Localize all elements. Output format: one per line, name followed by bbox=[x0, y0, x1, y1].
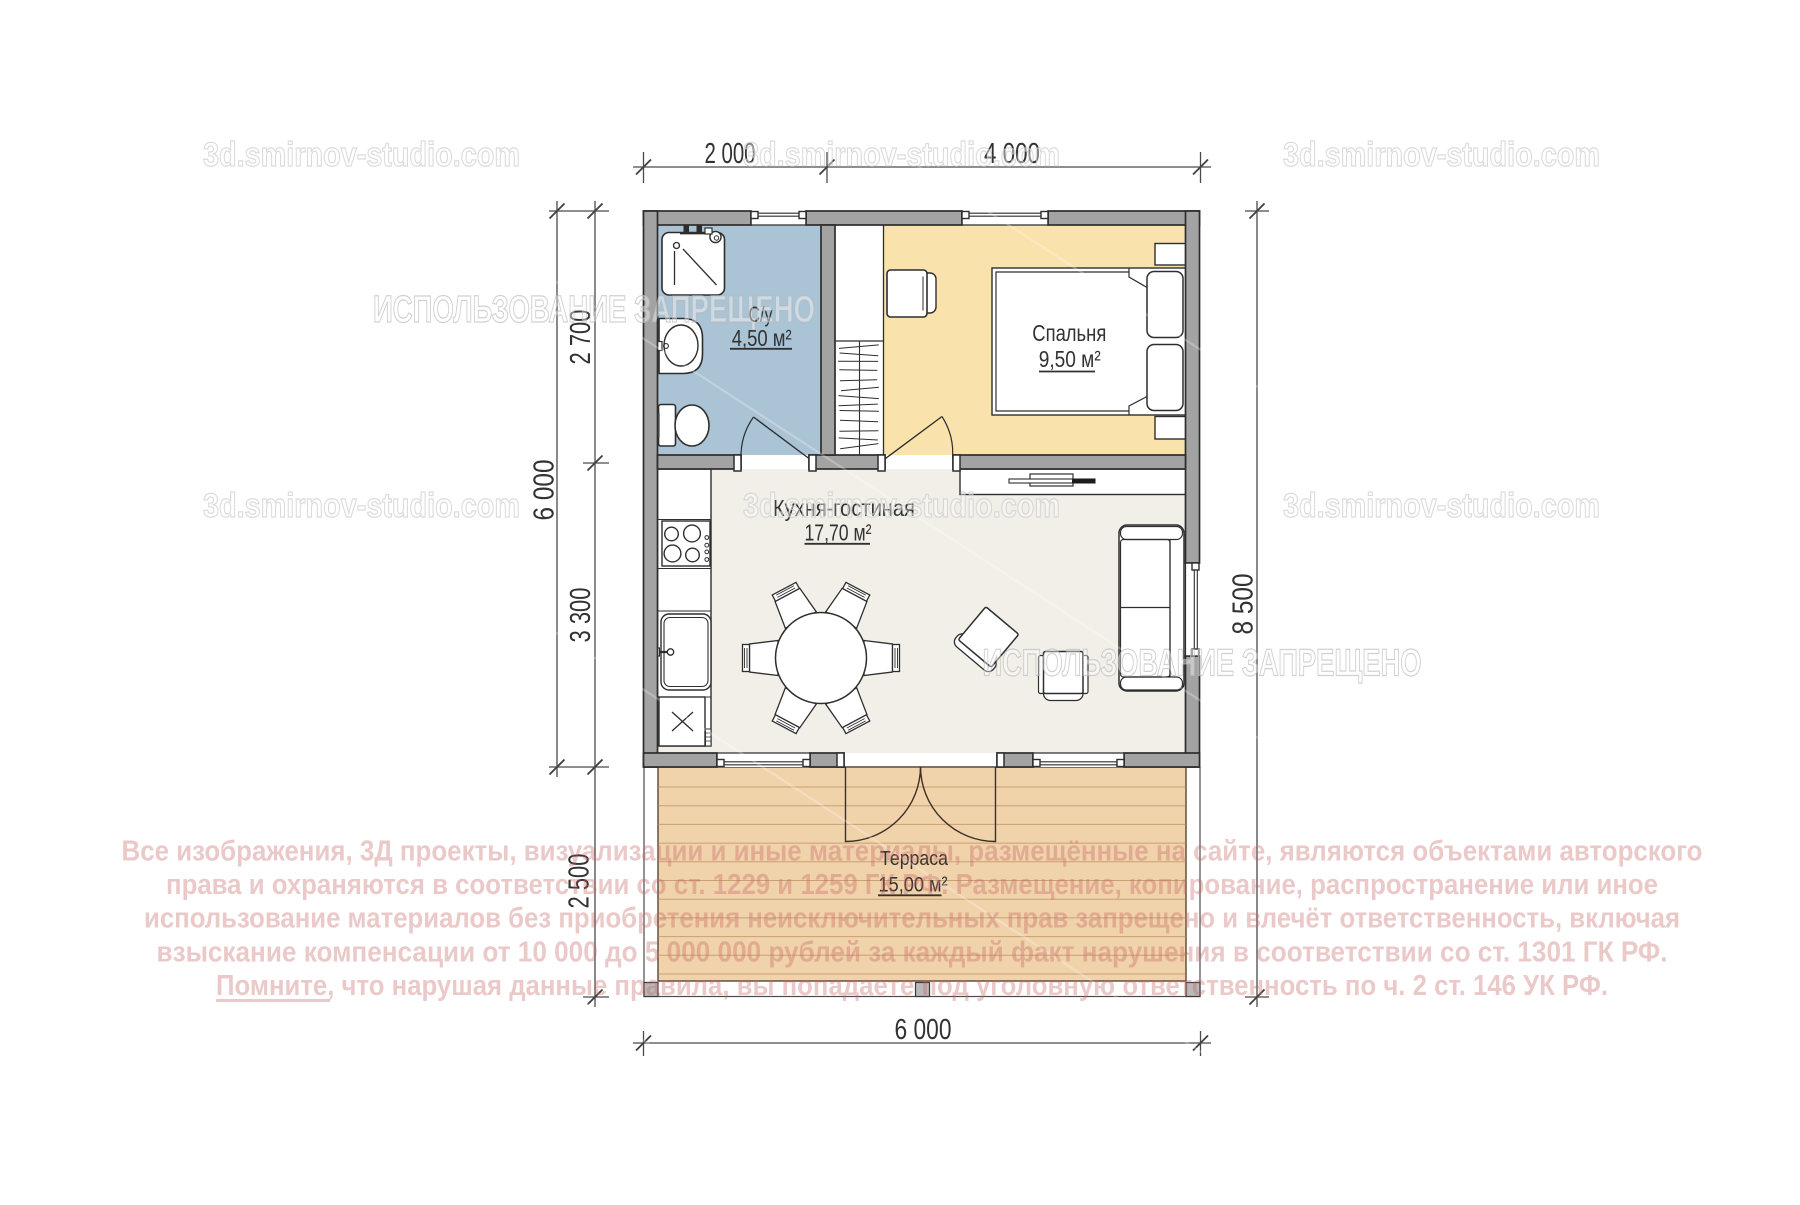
svg-text:Помните, что нарушая данные пр: Помните, что нарушая данные правила, вы … bbox=[216, 970, 1608, 1002]
svg-text:3d.smirnov-studio.com: 3d.smirnov-studio.com bbox=[1283, 136, 1600, 174]
svg-text:ИСПОЛЬЗОВАНИЕ ЗАПРЕЩЕНО: ИСПОЛЬЗОВАНИЕ ЗАПРЕЩЕНО bbox=[983, 643, 1422, 685]
svg-text:8 500: 8 500 bbox=[1228, 574, 1260, 635]
svg-text:9,50 м²: 9,50 м² bbox=[1039, 346, 1101, 372]
svg-text:использование материалов без п: использование материалов без приобретени… bbox=[144, 903, 1680, 935]
svg-text:3 300: 3 300 bbox=[565, 588, 597, 643]
svg-text:ИСПОЛЬЗОВАНИЕ ЗАПРЕЩЕНО: ИСПОЛЬЗОВАНИЕ ЗАПРЕЩЕНО bbox=[373, 289, 815, 331]
svg-text:права и охраняются в соответст: права и охраняются в соответствии со ст.… bbox=[166, 869, 1658, 901]
svg-text:3d.smirnov-studio.com: 3d.smirnov-studio.com bbox=[203, 487, 520, 525]
svg-text:взыскание компенсации от 10 00: взыскание компенсации от 10 000 до 5 000… bbox=[157, 936, 1668, 968]
svg-text:3d.smirnov-studio.com: 3d.smirnov-studio.com bbox=[203, 136, 520, 174]
svg-text:3d.smirnov-studio.com: 3d.smirnov-studio.com bbox=[743, 136, 1060, 174]
svg-text:3d.smirnov-studio.com: 3d.smirnov-studio.com bbox=[1283, 487, 1600, 525]
svg-text:Спальня: Спальня bbox=[1032, 320, 1106, 346]
svg-text:6 000: 6 000 bbox=[895, 1014, 952, 1046]
svg-text:Все изображения, 3Д проекты, в: Все изображения, 3Д проекты, визуализаци… bbox=[122, 836, 1703, 868]
svg-text:3d.smirnov-studio.com: 3d.smirnov-studio.com bbox=[743, 487, 1060, 525]
svg-text:6 000: 6 000 bbox=[529, 460, 561, 521]
